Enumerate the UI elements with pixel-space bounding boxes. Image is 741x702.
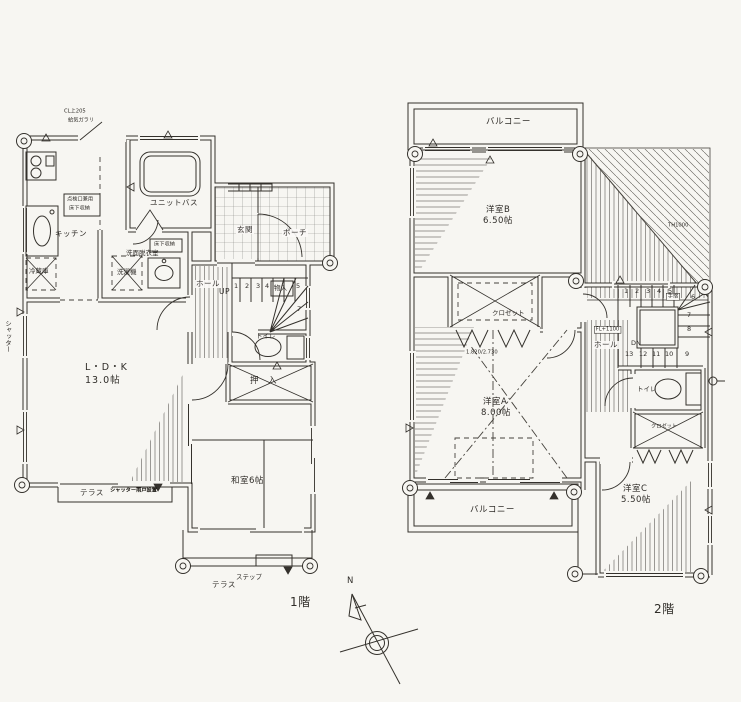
balcony-bottom-label: バルコニー xyxy=(470,506,515,515)
bathtub xyxy=(140,152,200,196)
room-label-roomC: 洋室C xyxy=(623,485,647,494)
room-size-roomC: 5.50帖 xyxy=(621,496,651,505)
dimension-note: 1.820/2.730 xyxy=(466,350,498,355)
stairs2-number: 1 xyxy=(624,288,628,295)
stairs2-number: 13 xyxy=(625,351,633,358)
fl-level-label: FL+1100 xyxy=(594,326,621,334)
washer-label: 洗濯機 xyxy=(117,269,137,276)
entrance-tile-hatch xyxy=(215,187,332,261)
compass-north-label: N xyxy=(347,577,354,586)
toilet2-tank xyxy=(686,373,701,405)
room-label-ldk: L・D・K xyxy=(85,363,128,373)
room-size-roomB: 6.50帖 xyxy=(483,217,513,226)
stairs2-dn-label: DN xyxy=(631,340,641,347)
roof-note: TH1000 xyxy=(668,223,688,228)
balcony-top-label: バルコニー xyxy=(486,118,531,127)
toilet1-tank xyxy=(287,336,304,359)
room-label-toilet2: トイレ xyxy=(637,386,657,393)
toilet2-bowl xyxy=(655,379,681,399)
room-label-hall2: ホール xyxy=(593,341,619,349)
note-top-2: 給気ガラリ xyxy=(68,118,94,123)
closetC-label: クロゼット xyxy=(651,424,677,429)
room-label-washroom: 洗面脱衣室 xyxy=(126,250,159,257)
stairs2-number: 6 xyxy=(691,294,695,301)
room-label-genkan: 玄関 xyxy=(236,226,254,234)
room-label-toilet1: トイレ xyxy=(256,333,276,340)
stairs1-number: 4 xyxy=(265,283,269,290)
terrace-note: シャッター雨戸設置 xyxy=(110,488,157,493)
stairs2-number: 9 xyxy=(685,351,689,358)
inspection-hatch-line1: 点検口兼用 xyxy=(67,197,93,202)
stairs2-number: 8 xyxy=(687,326,691,333)
shutter-label: シャッター xyxy=(4,320,11,353)
room-size-ldk: 13.0帖 xyxy=(85,376,121,386)
monoire-label: 物入 xyxy=(274,285,287,292)
roomC-slope-hatch xyxy=(602,478,694,572)
terrace-south-label: テラス xyxy=(212,581,236,589)
stairs2-number: 7 xyxy=(687,312,691,319)
stairs1-number: 1 xyxy=(234,283,238,290)
floorplan-sheet: CL上205 給気ガラリ ユニットバス キッチン 点検口兼用 床下収納 冷蔵庫 … xyxy=(0,0,741,702)
stairs2-number: 10 xyxy=(665,351,673,358)
note-top-1: CL上205 xyxy=(64,109,86,114)
ldk-slope-hatch xyxy=(130,368,186,482)
stairs2-number: 12 xyxy=(639,351,647,358)
room-label-oshiire: 押 入 xyxy=(250,377,277,386)
stairs1-number: 3 xyxy=(256,283,260,290)
room-label-porch: ポーチ xyxy=(282,229,308,237)
hatch-areas xyxy=(130,148,710,572)
floor2-title: 2階 xyxy=(654,603,675,615)
roomB-slope-hatch xyxy=(415,157,492,278)
stairs2-number: 3 xyxy=(646,288,650,295)
stairs1-number: 5 xyxy=(296,283,300,290)
room-size-roomA: 8.00帖 xyxy=(481,409,511,418)
step-label: ステップ xyxy=(236,574,262,581)
stairs2-number: 5 xyxy=(668,288,672,295)
room-label-washitsu: 和室6帖 xyxy=(231,477,264,486)
room-label-kitchen: キッチン xyxy=(55,230,87,238)
room-label-roomB: 洋室B xyxy=(486,206,510,215)
stairs1-number: 2 xyxy=(245,283,249,290)
stairs2-number: 11 xyxy=(652,351,660,358)
closetA-label: クロゼット xyxy=(492,310,525,317)
compass-rose xyxy=(340,594,418,684)
underfloor-storage-label: 床下収納 xyxy=(154,242,175,247)
inspection-hatch-line2: 床下収納 xyxy=(69,206,90,211)
stairs1-up-label: UP xyxy=(219,288,230,296)
room-label-hall1: ホール xyxy=(195,280,221,288)
floor1-title: 1階 xyxy=(290,596,311,608)
room-label-roomA: 洋室A xyxy=(483,398,507,407)
room-label-bath: ユニットバス xyxy=(150,199,198,207)
terrace-west-label: テラス xyxy=(80,489,104,497)
stairs1-number: 7 xyxy=(297,306,301,313)
toilet1-bowl xyxy=(255,338,281,357)
fridge-label: 冷蔵庫 xyxy=(29,268,49,275)
stairs2-number: 2 xyxy=(635,288,639,295)
stairs2-number: 4 xyxy=(657,288,661,295)
